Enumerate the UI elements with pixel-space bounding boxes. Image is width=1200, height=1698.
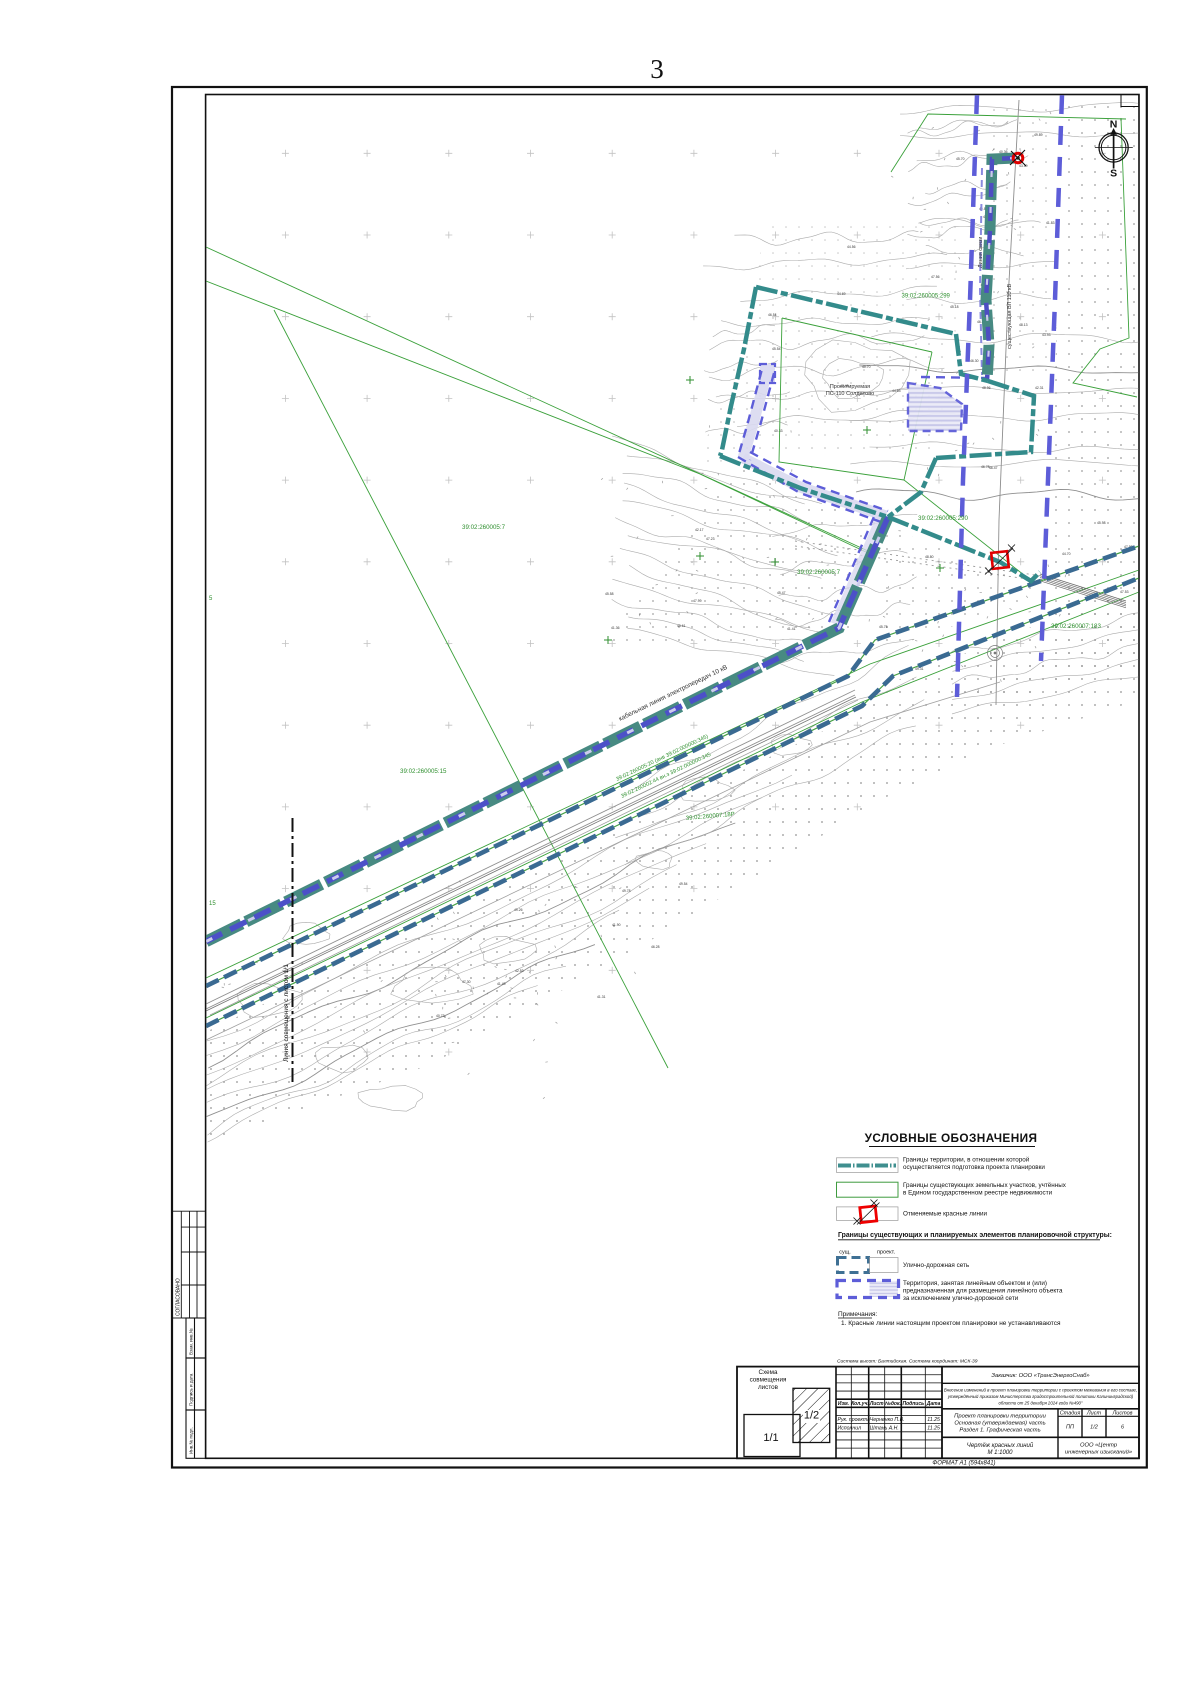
svg-text:Взам. инв.№: Взам. инв.№ xyxy=(189,1328,194,1355)
svg-text:за исключением улично-дорожной: за исключением улично-дорожной сети xyxy=(903,1294,1019,1302)
svg-text:3: 3 xyxy=(650,54,664,84)
svg-text:49.54: 49.54 xyxy=(679,882,688,886)
svg-text:45.75: 45.75 xyxy=(879,625,888,629)
svg-text:41.31: 41.31 xyxy=(597,995,606,999)
svg-text:Границы территории, в отношени: Границы территории, в отношении которой xyxy=(903,1156,1030,1164)
svg-text:области от 25 декабря 2024 год: области от 25 декабря 2024 года №490" xyxy=(999,1401,1083,1406)
svg-text:Система высот: Балтийская. Сис: Система высот: Балтийская. Система коорд… xyxy=(837,1358,978,1365)
svg-text:1. Красные линии настоящим пр: 1. Красные линии настоящим проектом план… xyxy=(841,1320,1061,1327)
svg-text:11.25: 11.25 xyxy=(927,1417,940,1423)
svg-text:48.13: 48.13 xyxy=(1019,323,1028,327)
svg-text:47.53: 47.53 xyxy=(1120,590,1129,594)
svg-text:15: 15 xyxy=(209,901,216,907)
svg-text:46.30: 46.30 xyxy=(970,359,979,363)
svg-text:СОГЛАСОВАНО: СОГЛАСОВАНО xyxy=(176,1278,182,1316)
svg-text:осуществляется подготовка прое: осуществляется подготовка проекта планир… xyxy=(903,1164,1045,1171)
svg-text:ПС-110 Солдатово: ПС-110 Солдатово xyxy=(826,391,875,397)
svg-text:Проектируемая: Проектируемая xyxy=(830,384,870,390)
svg-text:46.28: 46.28 xyxy=(651,945,660,949)
svg-text:45.47: 45.47 xyxy=(777,591,786,595)
svg-text:39:02:260005:290: 39:02:260005:290 xyxy=(918,515,968,522)
svg-text:№док.: №док. xyxy=(885,1401,901,1407)
svg-text:45.70: 45.70 xyxy=(956,157,965,161)
svg-text:существующая ВЛ 110 кВ: существующая ВЛ 110 кВ xyxy=(1007,283,1013,349)
svg-text:45.54: 45.54 xyxy=(772,347,781,351)
svg-text:Границы существующих и планиру: Границы существующих и планируемых элеме… xyxy=(838,1231,1112,1239)
svg-text:49.78: 49.78 xyxy=(622,889,631,893)
svg-text:43.93: 43.93 xyxy=(1042,333,1051,337)
svg-text:39:02:260005:15: 39:02:260005:15 xyxy=(400,768,447,775)
svg-text:47.23: 47.23 xyxy=(706,537,715,541)
svg-text:Инв.№ подл.: Инв.№ подл. xyxy=(189,1427,194,1454)
svg-text:предназначенная для размещения: предназначенная для размещения линейного… xyxy=(903,1287,1063,1295)
svg-text:Листов: Листов xyxy=(1111,1411,1132,1417)
svg-text:Чертёж красных линий: Чертёж красных линий xyxy=(967,1442,1034,1449)
svg-text:УСЛОВНЫЕ ОБОЗНАЧЕНИЯ: УСЛОВНЫЕ ОБОЗНАЧЕНИЯ xyxy=(865,1131,1038,1145)
svg-text:42.31: 42.31 xyxy=(1035,386,1044,390)
svg-text:Границы существующих земельных: Границы существующих земельных участков,… xyxy=(903,1182,1067,1189)
svg-text:Примечания:: Примечания: xyxy=(838,1311,878,1318)
svg-text:Заказчик: ООО «ТрансЭнергоСна: Заказчик: ООО «ТрансЭнергоСнаб» xyxy=(991,1373,1089,1379)
svg-text:41.36: 41.36 xyxy=(611,626,620,630)
svg-text:44.69: 44.69 xyxy=(837,292,846,296)
svg-text:Раздел 1. Графическая часть: Раздел 1. Графическая часть xyxy=(959,1428,1040,1434)
svg-text:Улично-дорожная сеть: Улично-дорожная сеть xyxy=(903,1262,970,1269)
svg-text:39:02:260007:183: 39:02:260007:183 xyxy=(1051,623,1101,630)
svg-text:Линия совмещения с листом 1/1: Линия совмещения с листом 1/1 xyxy=(283,964,290,1062)
svg-text:ООО «Центр: ООО «Центр xyxy=(1080,1443,1118,1449)
svg-text:проект.: проект. xyxy=(877,1250,896,1256)
svg-text:46.47: 46.47 xyxy=(989,466,998,470)
svg-text:Черненко П.В.: Черненко П.В. xyxy=(870,1417,905,1423)
svg-text:листов: листов xyxy=(758,1384,779,1391)
svg-text:46.54: 46.54 xyxy=(768,313,777,317)
svg-text:инженерных изысканий»: инженерных изысканий» xyxy=(1065,1449,1132,1456)
svg-text:49.26: 49.26 xyxy=(514,908,523,912)
svg-text:44.53: 44.53 xyxy=(892,389,901,393)
svg-text:44.70: 44.70 xyxy=(1062,552,1071,556)
svg-text:Изм.: Изм. xyxy=(838,1401,849,1407)
svg-text:45.18: 45.18 xyxy=(950,305,959,309)
svg-text:1/2: 1/2 xyxy=(1090,1425,1098,1431)
svg-text:42.17: 42.17 xyxy=(695,528,704,532)
svg-text:41.83: 41.83 xyxy=(1046,221,1055,225)
svg-text:47.30: 47.30 xyxy=(462,980,471,984)
svg-text:Подпись и дата: Подпись и дата xyxy=(189,1373,194,1406)
svg-text:49.89: 49.89 xyxy=(1034,133,1043,137)
svg-text:11.25: 11.25 xyxy=(927,1426,940,1432)
svg-text:Внесение изменений в проект пл: Внесение изменений в проект планировки т… xyxy=(944,1388,1137,1393)
svg-text:Лист: Лист xyxy=(869,1401,884,1407)
svg-text:Дата: Дата xyxy=(926,1401,941,1407)
svg-text:48.80: 48.80 xyxy=(925,555,934,559)
svg-text:совмещения: совмещения xyxy=(750,1377,787,1384)
svg-text:Исполнил: Исполнил xyxy=(838,1426,862,1432)
svg-text:утверждённый приказом Министер: утверждённый приказом Министерства градо… xyxy=(947,1394,1134,1399)
svg-text:Кол.уч.: Кол.уч. xyxy=(851,1401,869,1407)
svg-text:Штань А.Н.: Штань А.Н. xyxy=(870,1426,899,1432)
svg-text:40.70: 40.70 xyxy=(862,365,871,369)
svg-text:48.96: 48.96 xyxy=(982,386,991,390)
svg-text:39:02:260005:7: 39:02:260005:7 xyxy=(462,524,506,531)
svg-text:S: S xyxy=(1110,168,1117,180)
svg-text:45.61: 45.61 xyxy=(677,624,686,628)
svg-text:39:02:260005:299: 39:02:260005:299 xyxy=(902,294,951,300)
svg-text:Рук. проекта: Рук. проекта xyxy=(838,1417,871,1423)
svg-text:44.56: 44.56 xyxy=(847,245,856,249)
svg-text:40.33: 40.33 xyxy=(774,429,783,433)
svg-text:47.99: 47.99 xyxy=(693,599,702,603)
svg-text:Линия связи: Линия связи xyxy=(978,237,984,268)
svg-text:Схема: Схема xyxy=(759,1369,778,1376)
svg-text:1/1: 1/1 xyxy=(763,1432,778,1444)
svg-text:Основная (утверждаемая) часть: Основная (утверждаемая) часть xyxy=(954,1421,1045,1427)
svg-text:Лист: Лист xyxy=(1086,1411,1102,1417)
svg-text:ПП: ПП xyxy=(1066,1425,1074,1431)
svg-text:47.56: 47.56 xyxy=(931,275,940,279)
svg-text:39:02:260005:7: 39:02:260005:7 xyxy=(797,569,841,576)
svg-text:46.78: 46.78 xyxy=(981,465,990,469)
svg-text:41.49: 41.49 xyxy=(497,982,506,986)
svg-text:Подпись: Подпись xyxy=(902,1401,924,1407)
svg-text:ФОРМАТ А1 (594х841): ФОРМАТ А1 (594х841) xyxy=(932,1461,995,1467)
svg-text:43.59: 43.59 xyxy=(1019,164,1028,168)
svg-text:в Едином государственном реест: в Едином государственном реестре недвижи… xyxy=(903,1190,1053,1197)
svg-text:45.98: 45.98 xyxy=(1097,521,1106,525)
svg-text:41.90: 41.90 xyxy=(612,923,621,927)
svg-text:Отменяемые красные линии: Отменяемые красные линии xyxy=(903,1211,987,1218)
svg-text:сущ.: сущ. xyxy=(839,1250,851,1256)
svg-text:41.41: 41.41 xyxy=(787,627,796,631)
svg-text:Территория, занятая линейным о: Территория, занятая линейным объектом и … xyxy=(903,1279,1047,1287)
svg-text:45.58: 45.58 xyxy=(605,592,614,596)
svg-text:42.53: 42.53 xyxy=(515,969,524,973)
svg-text:Стадия: Стадия xyxy=(1060,1411,1081,1417)
svg-text:N: N xyxy=(1110,119,1118,131)
svg-text:М 1:1000: М 1:1000 xyxy=(987,1450,1013,1456)
svg-text:1/2: 1/2 xyxy=(804,1410,819,1422)
svg-text:40.73: 40.73 xyxy=(436,1014,445,1018)
svg-text:Проект планировки территории: Проект планировки территории xyxy=(954,1414,1046,1420)
